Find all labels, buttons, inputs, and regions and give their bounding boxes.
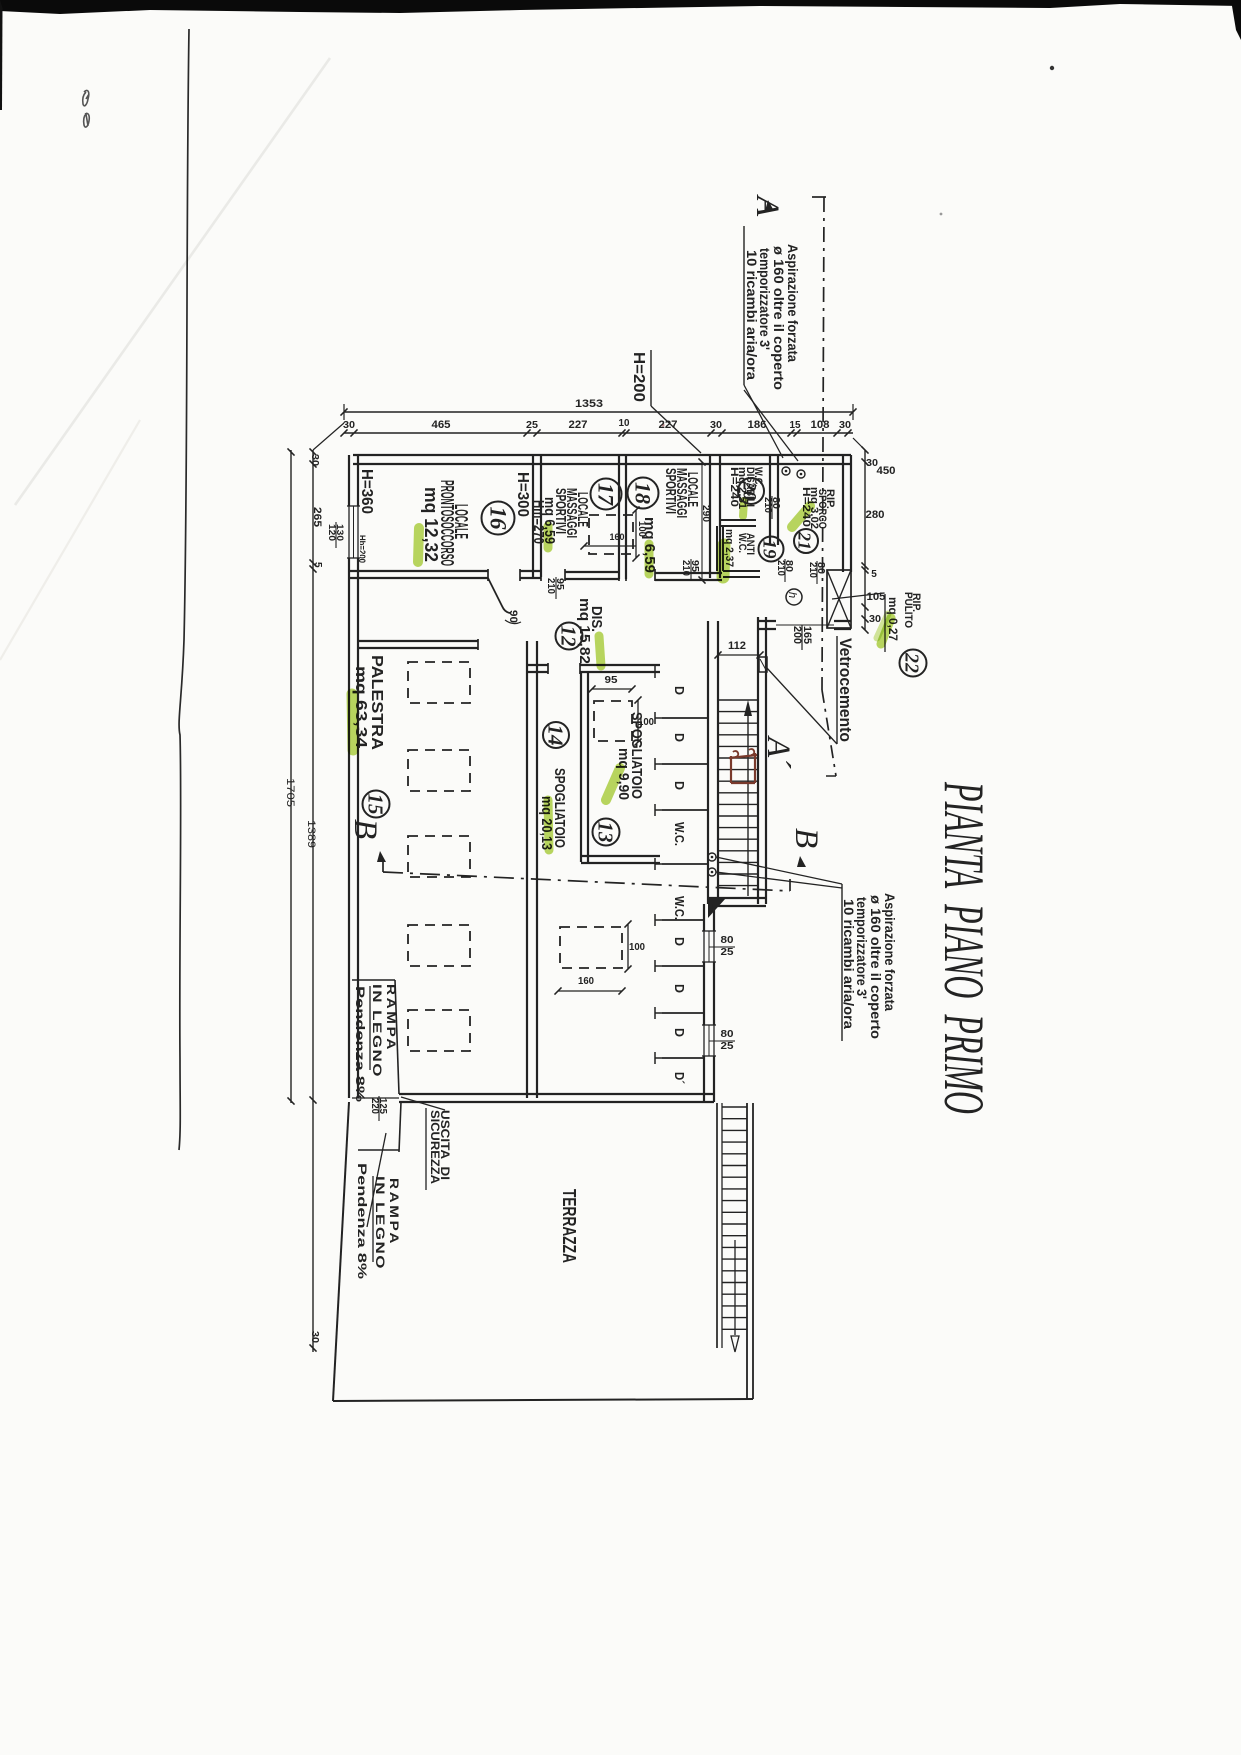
svg-text:15: 15	[790, 420, 801, 431]
svg-text:30: 30	[309, 454, 320, 466]
svg-text:100: 100	[629, 942, 645, 953]
svg-text:Pendenza 8%: Pendenza 8%	[353, 986, 365, 1102]
svg-text:100: 100	[638, 717, 654, 728]
svg-text:25: 25	[721, 947, 735, 958]
svg-text:W.C.: W.C.	[736, 533, 748, 553]
svg-text:450: 450	[877, 465, 896, 477]
svg-text:80: 80	[721, 935, 735, 946]
svg-text:Aspirazione forzata: Aspirazione forzata	[785, 244, 800, 362]
svg-text:80: 80	[721, 1029, 735, 1040]
svg-text:210: 210	[545, 578, 556, 594]
svg-text:PALESTRA: PALESTRA	[368, 655, 385, 750]
svg-text:W.C.: W.C.	[672, 896, 687, 920]
svg-text:SPORTIVI: SPORTIVI	[662, 468, 679, 514]
svg-text:30: 30	[309, 1331, 320, 1343]
svg-text:10 ricambi aria/ora: 10 ricambi aria/ora	[744, 250, 759, 381]
svg-text:10: 10	[619, 418, 630, 429]
svg-text:200: 200	[791, 626, 803, 644]
svg-text:100: 100	[636, 521, 647, 537]
svg-text:160: 160	[578, 976, 594, 987]
svg-text:210: 210	[807, 562, 818, 578]
svg-text:465: 465	[432, 419, 451, 431]
svg-text:D: D	[672, 733, 687, 742]
svg-text:H=200: H=200	[630, 352, 647, 402]
svg-text:227: 227	[659, 419, 678, 431]
svg-text:227: 227	[569, 419, 588, 431]
svg-text:30: 30	[343, 420, 355, 431]
svg-text:19: 19	[759, 540, 780, 560]
svg-text:20: 20	[739, 481, 760, 502]
svg-text:16: 16	[486, 507, 511, 531]
svg-text:13: 13	[594, 822, 618, 843]
svg-text:30: 30	[710, 420, 722, 431]
svg-text:Pendenza 8%: Pendenza 8%	[355, 1163, 367, 1279]
svg-text:D: D	[672, 984, 687, 993]
svg-text:H=300: H=300	[514, 472, 531, 517]
svg-text:h: h	[786, 592, 798, 598]
svg-text:12: 12	[557, 626, 581, 648]
svg-text:210: 210	[680, 560, 691, 576]
svg-text:RAMPA: RAMPA	[387, 1178, 399, 1246]
svg-text:D: D	[672, 1028, 687, 1037]
svg-text:B: B	[347, 819, 383, 839]
svg-text:Aspirazione forzata: Aspirazione forzata	[882, 893, 897, 1011]
svg-text:D: D	[672, 781, 687, 790]
svg-text:A´: A´	[760, 735, 796, 769]
svg-text:280: 280	[866, 509, 885, 521]
svg-text:17: 17	[594, 483, 619, 506]
svg-text:TERRAZZA: TERRAZZA	[559, 1189, 579, 1263]
svg-text:112: 112	[728, 640, 746, 652]
svg-text:D´: D´	[672, 1072, 687, 1084]
svg-text:5: 5	[312, 562, 323, 568]
svg-text:18: 18	[631, 482, 656, 504]
svg-text:IN LEGNO: IN LEGNO	[370, 984, 382, 1078]
svg-text:SICUREZZA: SICUREZZA	[428, 1110, 440, 1184]
svg-text:ø 160 oltre il coperto: ø 160 oltre il coperto	[771, 246, 786, 390]
svg-text:14: 14	[544, 725, 568, 746]
svg-text:265: 265	[311, 507, 323, 527]
svg-text:210: 210	[762, 497, 773, 513]
svg-text:30: 30	[839, 420, 851, 431]
svg-text:21: 21	[795, 531, 815, 550]
svg-text:ø 160 oltre il coperto: ø 160 oltre il coperto	[868, 895, 883, 1039]
svg-text:H=360: H=360	[358, 469, 375, 514]
svg-text:90: 90	[507, 610, 519, 623]
svg-text:PULITO: PULITO	[902, 592, 914, 628]
svg-text:1353: 1353	[575, 398, 603, 410]
svg-text:D: D	[672, 937, 687, 946]
svg-text:1705: 1705	[284, 778, 296, 807]
svg-text:15: 15	[364, 794, 388, 815]
svg-text:95: 95	[605, 675, 619, 686]
svg-text:108: 108	[811, 419, 830, 431]
svg-text:IN LEGNO: IN LEGNO	[373, 1176, 385, 1270]
svg-text:PIANTA PIANO PRIMO: PIANTA PIANO PRIMO	[932, 781, 995, 1114]
svg-text:220: 220	[369, 1098, 380, 1114]
svg-text:5: 5	[871, 569, 877, 580]
svg-text:W.C.: W.C.	[672, 822, 687, 846]
svg-text:D: D	[672, 686, 687, 695]
svg-text:120: 120	[326, 524, 337, 541]
svg-text:22: 22	[901, 652, 923, 673]
svg-text:290: 290	[700, 505, 711, 522]
svg-text:210: 210	[775, 560, 786, 576]
svg-text:Vetrocemento: Vetrocemento	[836, 638, 855, 742]
svg-text:25: 25	[721, 1041, 735, 1052]
svg-text:30: 30	[869, 614, 881, 625]
svg-text:1389: 1389	[305, 820, 317, 848]
svg-text:B: B	[788, 828, 824, 848]
svg-text:25: 25	[526, 420, 538, 431]
svg-text:160: 160	[610, 532, 625, 543]
svg-text:RAMPA: RAMPA	[384, 984, 396, 1052]
svg-text:mq 12,32: mq 12,32	[421, 487, 441, 562]
svg-text:10 ricambi aria/ora: 10 ricambi aria/ora	[841, 899, 856, 1030]
